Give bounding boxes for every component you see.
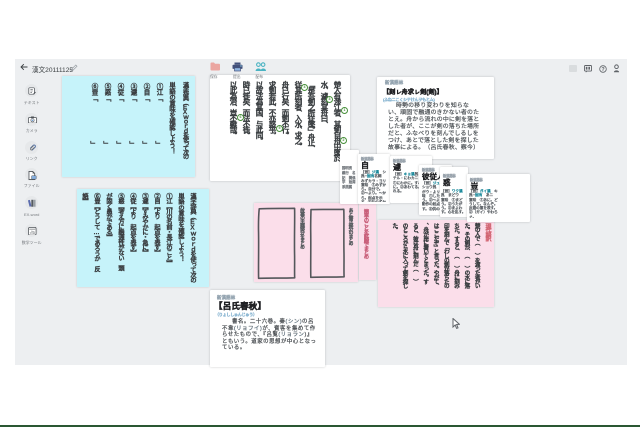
svg-text:√5: √5 [30, 229, 36, 234]
svg-text:?: ? [601, 67, 604, 73]
